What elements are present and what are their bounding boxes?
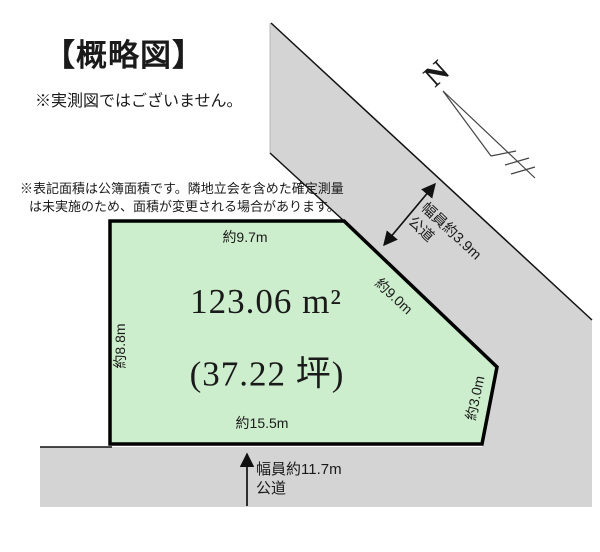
area-note-line2: は未実施のため、面積が変更される場合があります。 [29, 198, 344, 216]
bottom-road-width-label: 幅員約11.7m [256, 460, 342, 479]
plot-area-tsubo: (37.22 坪) [190, 346, 345, 397]
north-arrow-icon [443, 91, 535, 178]
bottom-road-type-label: 公道 [256, 479, 342, 498]
schematic-diagram: 【概略図】 ※実測図ではございません。 ※表記面積は公簿面積です。隣地立会を含め… [0, 0, 600, 552]
bottom-road-label: 幅員約11.7m 公道 [256, 460, 342, 498]
disclaimer-note: ※実測図ではございません。 [35, 87, 243, 111]
plot-area-square-meters: 123.06 m² [190, 282, 342, 322]
dimension-bottom-edge: 約15.5m [236, 413, 289, 433]
area-note: ※表記面積は公簿面積です。隣地立会を含めた確定測量 は未実施のため、面積が変更さ… [20, 180, 344, 216]
area-note-line1: ※表記面積は公簿面積です。隣地立会を含めた確定測量 [20, 180, 344, 198]
dimension-top-edge: 約9.7m [222, 227, 267, 247]
dimension-left-edge: 約8.8m [110, 323, 130, 368]
page-title: 【概略図】 [44, 30, 204, 75]
